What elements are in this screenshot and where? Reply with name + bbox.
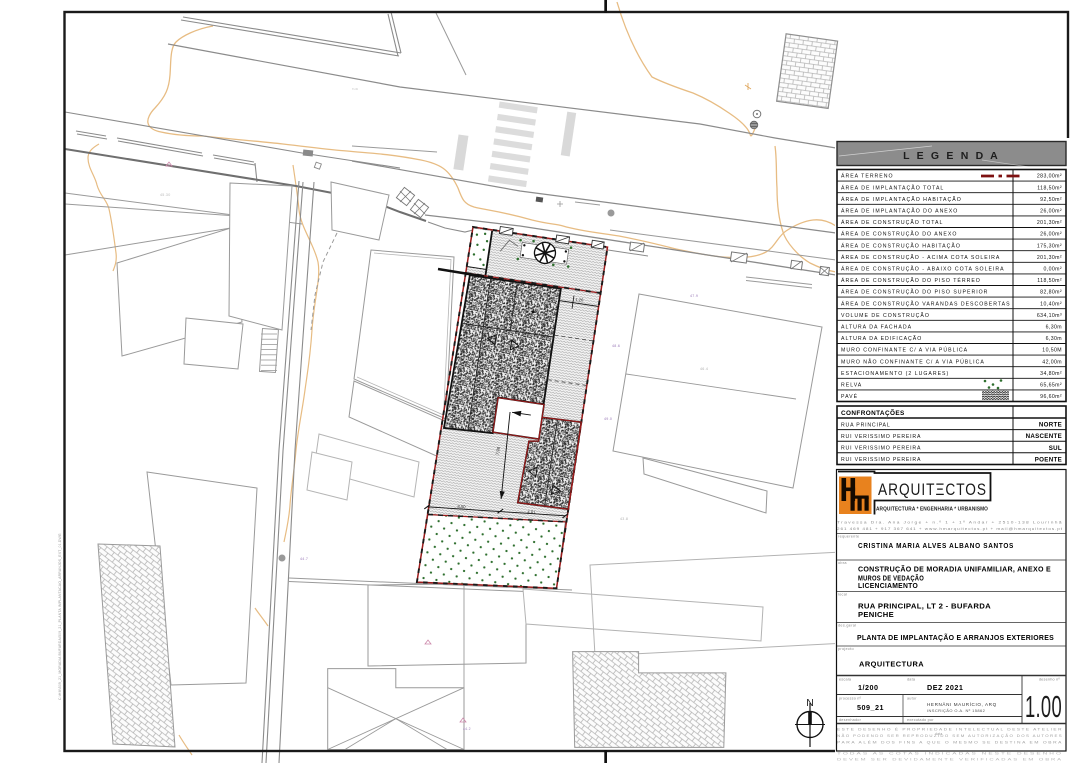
svg-text:PAVÉ: PAVÉ [841, 393, 858, 400]
svg-text:ÁREA DE CONSTRUÇÃO - ACIMA COT: ÁREA DE CONSTRUÇÃO - ACIMA COTA SOLEIRA [841, 254, 1000, 261]
svg-text:201,30m²: 201,30m² [1037, 220, 1062, 226]
svg-text:4,01: 4,01 [527, 509, 536, 515]
svg-text:ÁREA DE CONSTRUÇÃO DO ANEXO: ÁREA DE CONSTRUÇÃO DO ANEXO [841, 231, 957, 238]
svg-text:desenhador: desenhador [839, 718, 862, 722]
svg-text:10,50M: 10,50M [1042, 348, 1062, 354]
svg-text:82,80m²: 82,80m² [1040, 290, 1062, 296]
svg-text:ÁREA DE CONSTRUÇÃO - ABAIXO CO: ÁREA DE CONSTRUÇÃO - ABAIXO COTA SOLEIRA [841, 266, 1005, 273]
svg-text:LICENCIAMENTO: LICENCIAMENTO [858, 581, 918, 590]
svg-text:42,00m: 42,00m [1042, 359, 1062, 365]
svg-text:6,30m: 6,30m [1046, 336, 1062, 342]
svg-text:INSCRIÇÃO O.A. Nº 15862: INSCRIÇÃO O.A. Nº 15862 [927, 708, 986, 713]
svg-text:0,00m²: 0,00m² [1043, 267, 1062, 273]
svg-text:48.6: 48.6 [612, 344, 620, 348]
svg-text:ÁREA TERRENO: ÁREA TERRENO [841, 173, 894, 180]
svg-text:PENICHE: PENICHE [858, 610, 894, 619]
svg-text:509_21: 509_21 [857, 703, 884, 712]
svg-text:96,60m²: 96,60m² [1040, 394, 1062, 400]
svg-text:ARQUITECTURA: ARQUITECTURA [859, 660, 924, 669]
svg-text:local: local [838, 593, 847, 597]
svg-text:261 469 481 + 917 367 641 + ww: 261 469 481 + 917 367 641 + www.hmarquit… [837, 526, 1063, 531]
svg-text:8,50: 8,50 [457, 504, 466, 510]
svg-text:RUI VERISSIMO PEREIRA: RUI VERISSIMO PEREIRA [841, 446, 921, 452]
svg-text:RUI VERISSIMO PEREIRA: RUI VERISSIMO PEREIRA [841, 457, 921, 463]
svg-text:Travessa Dra. Ana Jorge + n.º: Travessa Dra. Ana Jorge + n.º 1 + 1º And… [837, 520, 1063, 525]
svg-text:44.2: 44.2 [463, 727, 471, 731]
svg-text:VOLUME DE CONSTRUÇÃO: VOLUME DE CONSTRUÇÃO [841, 312, 930, 319]
svg-text:34,80m²: 34,80m² [1040, 371, 1062, 377]
svg-text:RELVA: RELVA [841, 383, 862, 389]
svg-text:ÁREA DE IMPLANTAÇÃO HABITAÇÃO: ÁREA DE IMPLANTAÇÃO HABITAÇÃO [841, 196, 962, 203]
svg-text:projecto: projecto [838, 647, 854, 651]
svg-text:ALTURA DA FACHADA: ALTURA DA FACHADA [841, 325, 912, 331]
svg-text:ESTE DESENHO É PROPRIEDADE INT: ESTE DESENHO É PROPRIEDADE INTELECTUAL D… [837, 727, 1063, 732]
svg-text:65,65m²: 65,65m² [1040, 383, 1062, 389]
svg-text:44.7: 44.7 [300, 557, 308, 561]
svg-text:45.30: 45.30 [160, 193, 171, 197]
svg-text:NÃO PODENDO SER REPRODUZIDO SE: NÃO PODENDO SER REPRODUZIDO SEM AUTORIZA… [837, 733, 1063, 738]
svg-text:C:\HM\509_21_MORADIA BUFARDA\5: C:\HM\509_21_MORADIA BUFARDA\509_21_PLAN… [58, 533, 62, 700]
svg-text:processo nº: processo nº [839, 697, 862, 701]
svg-text:ARQUITΞCTOS: ARQUITΞCTOS [878, 480, 987, 499]
svg-text:201,30m²: 201,30m² [1037, 255, 1062, 261]
svg-text:RUI VERISSIMO PEREIRA: RUI VERISSIMO PEREIRA [841, 434, 921, 440]
svg-text:autor: autor [907, 697, 917, 701]
svg-text:ALTURA DA EDIFICAÇÃO: ALTURA DA EDIFICAÇÃO [841, 335, 922, 342]
svg-text:ÁREA DE CONSTRUÇÃO DO PISO TÉR: ÁREA DE CONSTRUÇÃO DO PISO TÉRREO [841, 277, 981, 284]
svg-text:ÁREA DE CONSTRUÇÃO TOTAL: ÁREA DE CONSTRUÇÃO TOTAL [841, 219, 943, 226]
svg-text:des.geral: des.geral [838, 624, 856, 628]
svg-text:CRISTINA MARIA ALVES ALBANO SA: CRISTINA MARIA ALVES ALBANO SANTOS [858, 541, 1014, 550]
svg-text:ESTACIONAMENTO (2 LUGARES): ESTACIONAMENTO (2 LUGARES) [841, 371, 949, 377]
svg-text:DEZ 2021: DEZ 2021 [927, 683, 963, 692]
svg-text:46.4: 46.4 [700, 367, 708, 371]
svg-text:634,10m³: 634,10m³ [1037, 313, 1062, 319]
svg-text:ARQUITECTURA * ENGENHARIA * UR: ARQUITECTURA * ENGENHARIA * URBANISMO [876, 507, 988, 513]
svg-text:1,26: 1,26 [575, 297, 584, 303]
svg-text:ÁREA DE CONSTRUÇÃO HABITAÇÃO: ÁREA DE CONSTRUÇÃO HABITAÇÃO [841, 242, 961, 249]
svg-text:ÁREA DE CONSTRUÇÃO DO PISO SUP: ÁREA DE CONSTRUÇÃO DO PISO SUPERIOR [841, 289, 988, 296]
svg-text:rua: rua [352, 87, 358, 91]
svg-text:PLANTA DE IMPLANTAÇÃO E ARRANJ: PLANTA DE IMPLANTAÇÃO E ARRANJOS EXTERIO… [857, 633, 1054, 642]
svg-text:RUA PRINCIPAL: RUA PRINCIPAL [841, 422, 891, 428]
svg-text:10,40m²: 10,40m² [1040, 301, 1062, 307]
svg-text:ÁREA DE IMPLANTAÇÃO TOTAL: ÁREA DE IMPLANTAÇÃO TOTAL [841, 184, 944, 191]
svg-text:118,50m²: 118,50m² [1037, 278, 1062, 284]
svg-text:L E G E N D A: L E G E N D A [903, 150, 1000, 162]
svg-text:escala: escala [839, 678, 852, 682]
svg-text:92,50m²: 92,50m² [1040, 197, 1062, 203]
svg-text:POENTE: POENTE [1035, 456, 1062, 463]
svg-text:118,50m²: 118,50m² [1037, 185, 1062, 191]
svg-text:6,30m: 6,30m [1046, 325, 1062, 331]
svg-text:desenho nº: desenho nº [1039, 678, 1061, 682]
svg-text:NORTE: NORTE [1039, 422, 1062, 429]
svg-text:NASCENTE: NASCENTE [1026, 433, 1062, 440]
svg-text:TODAS AS COTAS INDICADAS NESTE: TODAS AS COTAS INDICADAS NESTE DESENHO [837, 752, 1063, 756]
svg-text:1.00: 1.00 [1025, 689, 1062, 724]
svg-text:requerente: requerente [838, 535, 859, 539]
svg-text:47.9: 47.9 [690, 294, 698, 298]
svg-text:1/200: 1/200 [858, 683, 879, 692]
svg-text:ÁREA DE IMPLANTAÇÃO DO ANEXO: ÁREA DE IMPLANTAÇÃO DO ANEXO [841, 208, 958, 215]
svg-text:43.8: 43.8 [620, 517, 628, 521]
svg-text:MURO NÃO CONFINANTE C/ A VIA P: MURO NÃO CONFINANTE C/ A VIA PÚBLICA [841, 358, 985, 365]
svg-text:MURO CONFINANTE C/ A VIA PÚBLI: MURO CONFINANTE C/ A VIA PÚBLICA [841, 347, 968, 354]
svg-text:CONFRONTAÇÕES: CONFRONTAÇÕES [841, 408, 905, 417]
svg-text:283,00m²: 283,00m² [1037, 174, 1062, 180]
svg-text:DEVEM SER DEVIDAMENTE VERIFICA: DEVEM SER DEVIDAMENTE VERIFICADAS EM OBR… [837, 758, 1063, 762]
svg-text:26,00m²: 26,00m² [1040, 209, 1062, 215]
svg-text:175,30m²: 175,30m² [1037, 243, 1062, 249]
svg-text:ÁREA DE CONSTRUÇÃO VARANDAS DE: ÁREA DE CONSTRUÇÃO VARANDAS DESCOBERTAS [841, 300, 1011, 307]
svg-text:PARA ALÉM DOS FINS A QUE O MES: PARA ALÉM DOS FINS A QUE O MESMO SE DEST… [837, 739, 1063, 744]
svg-text:executado por: executado por [907, 718, 934, 722]
svg-text:49.0: 49.0 [604, 417, 612, 421]
svg-text:26,00m²: 26,00m² [1040, 232, 1062, 238]
svg-text:obra: obra [838, 561, 847, 565]
svg-text:HERNÂNI MAURÍCIO, ARQ: HERNÂNI MAURÍCIO, ARQ [927, 701, 997, 707]
svg-text:SUL: SUL [1049, 445, 1062, 452]
svg-text:data: data [907, 678, 916, 682]
